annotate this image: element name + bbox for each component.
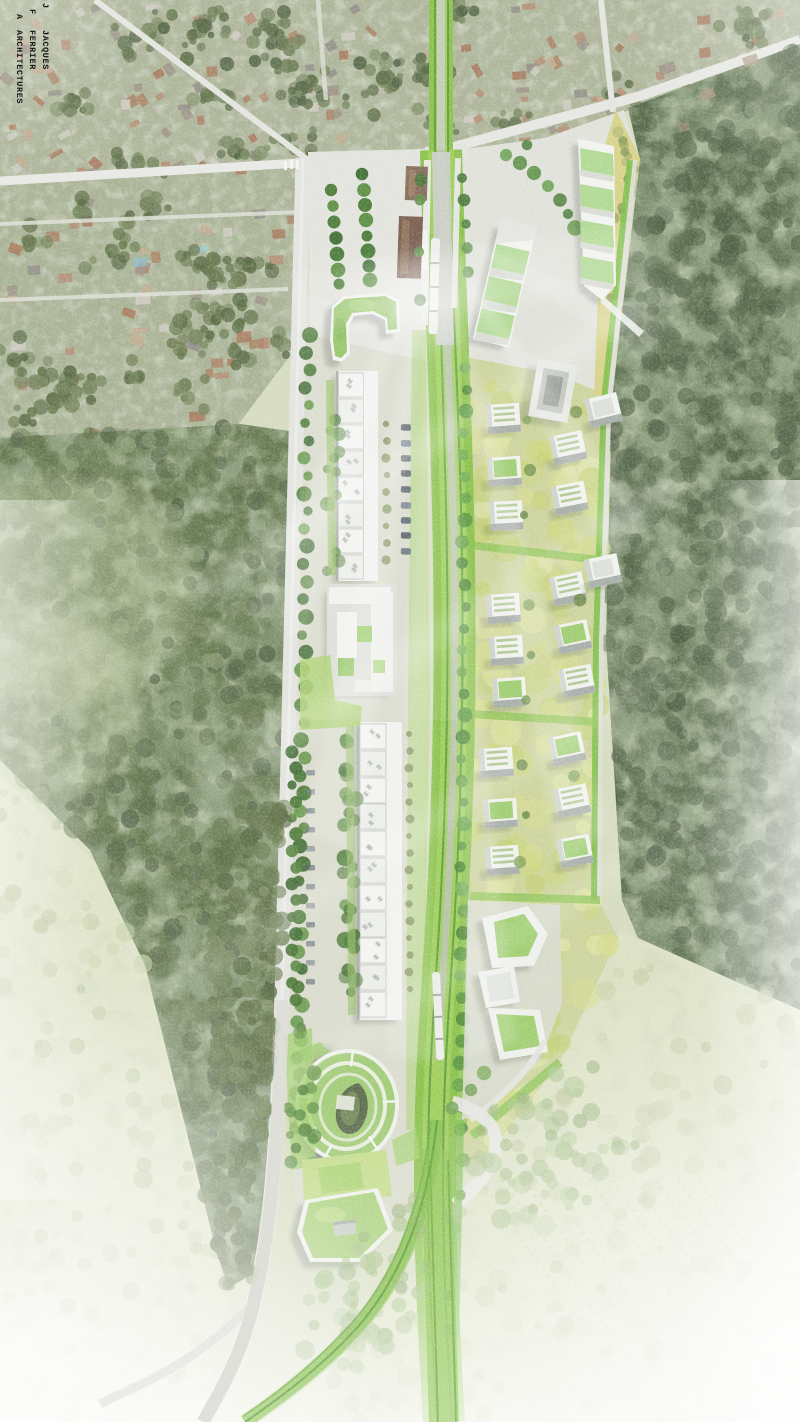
svg-text:FERRIER: FERRIER xyxy=(27,30,37,70)
svg-text:F: F xyxy=(27,9,37,15)
svg-text:A: A xyxy=(14,14,24,20)
svg-text:J: J xyxy=(40,3,50,9)
svg-text:ARCHITECTURES: ARCHITECTURES xyxy=(14,30,24,104)
svg-text:JACQUES: JACQUES xyxy=(40,30,50,70)
